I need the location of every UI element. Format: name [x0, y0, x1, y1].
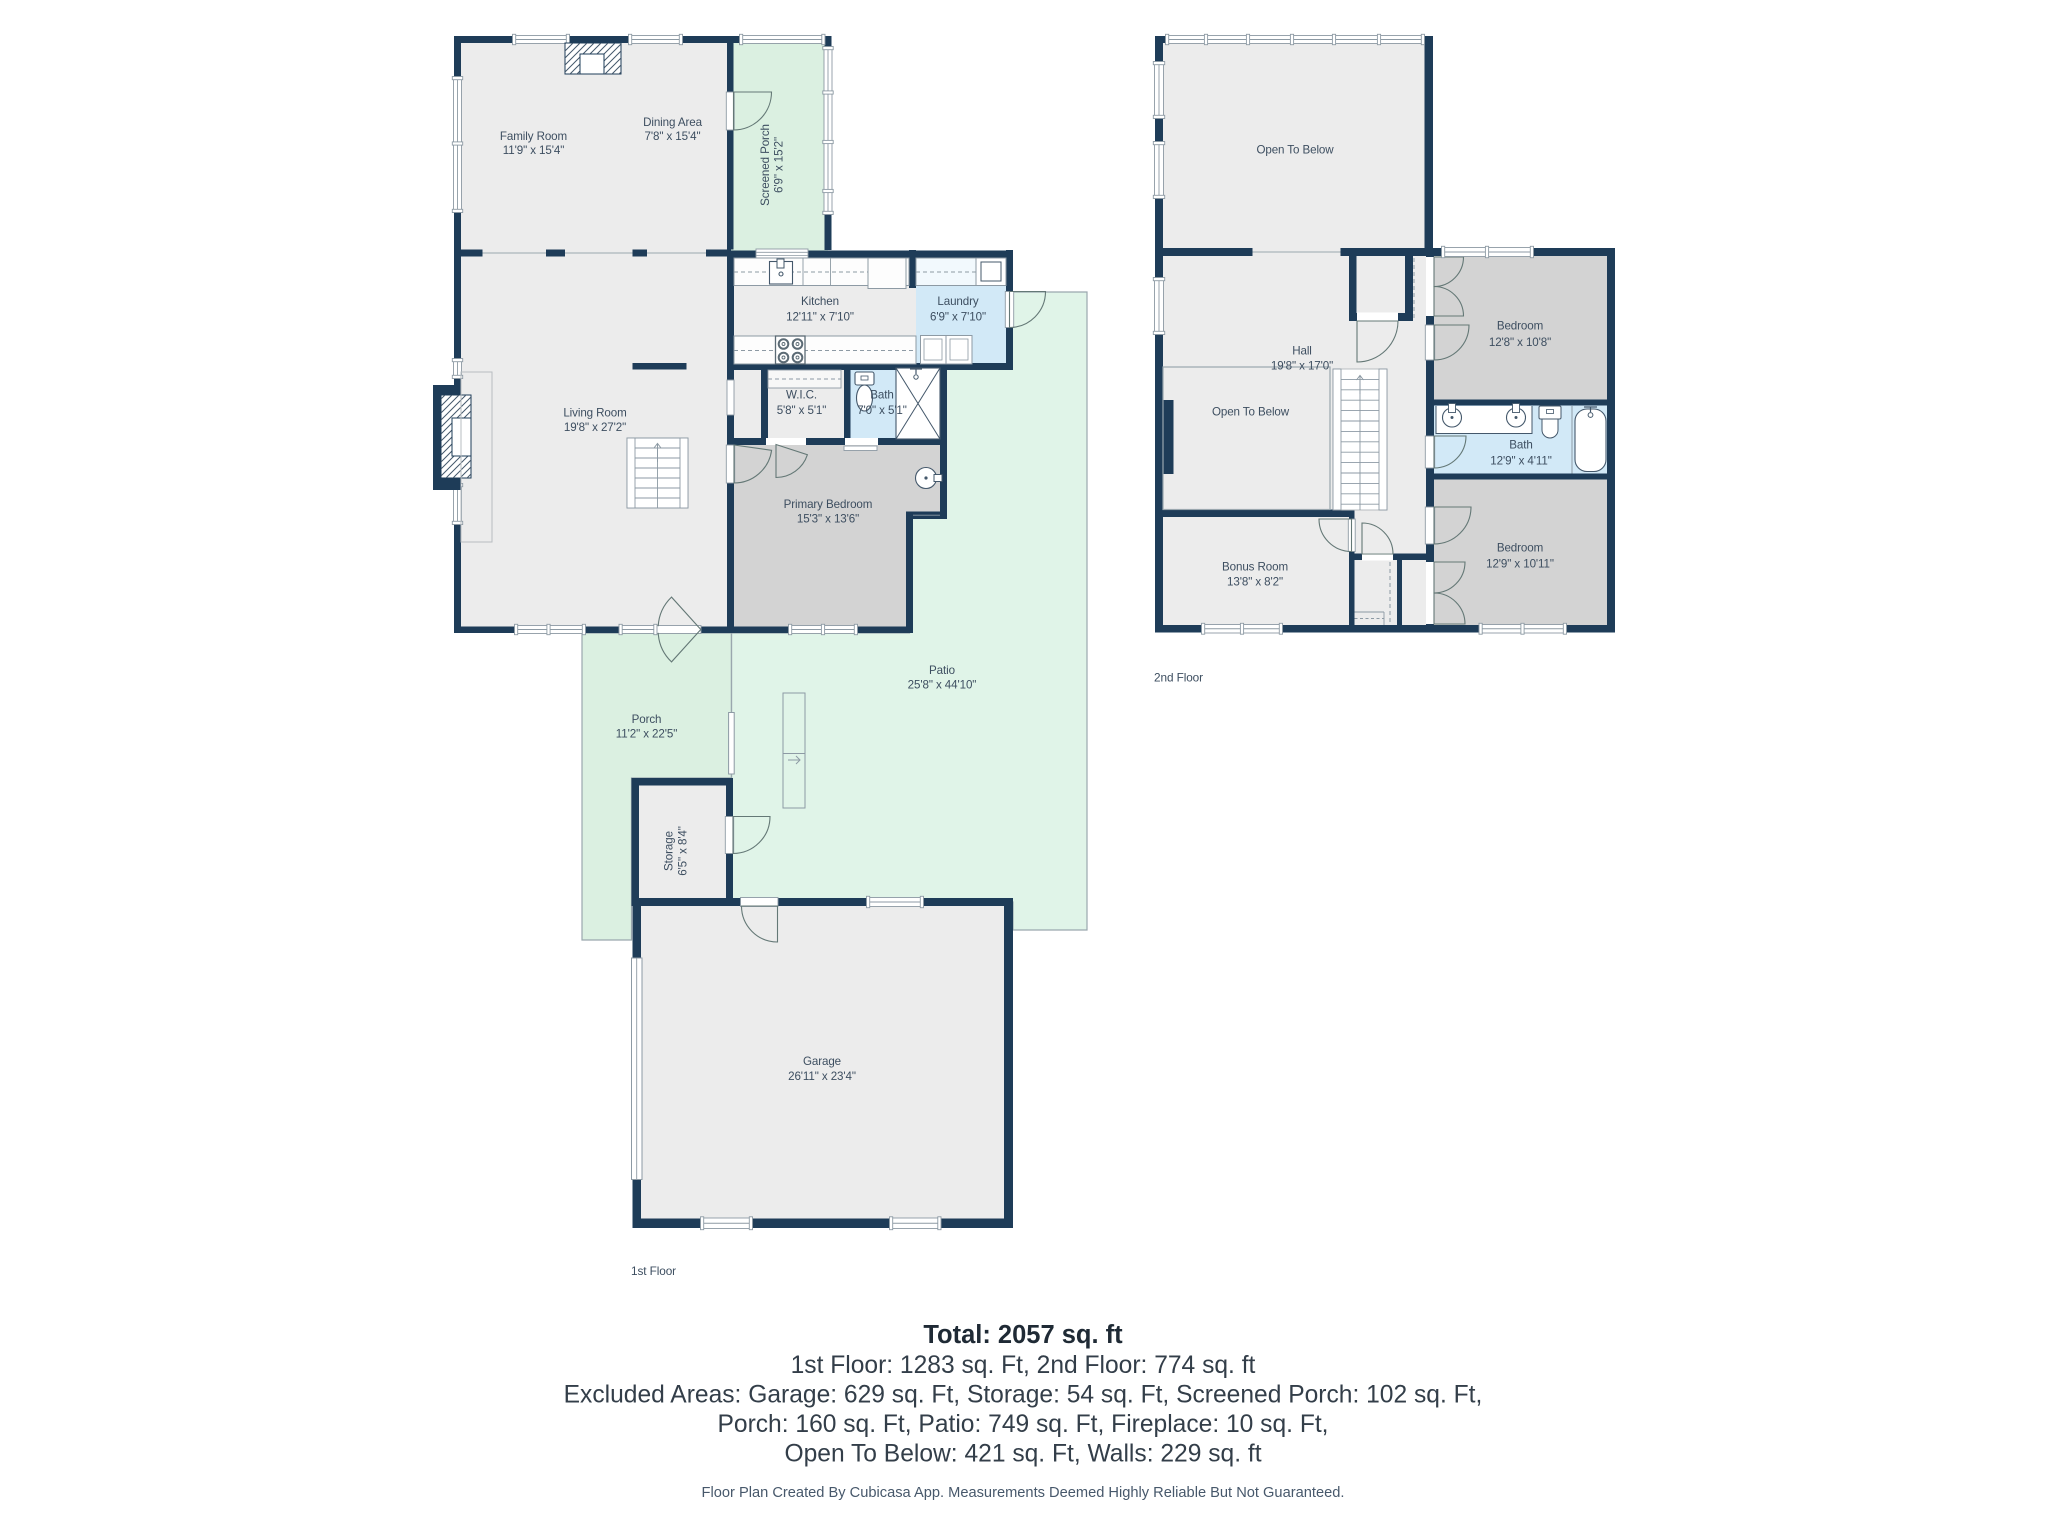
svg-text:Kitchen: Kitchen [801, 295, 839, 308]
svg-text:1st Floor: 1283 sq. Ft, 2nd Fl: 1st Floor: 1283 sq. Ft, 2nd Floor: 774 s… [791, 1352, 1256, 1379]
svg-text:12'8" x 10'8": 12'8" x 10'8" [1489, 336, 1551, 349]
svg-text:Family Room: Family Room [500, 130, 567, 143]
svg-text:Porch: Porch [632, 713, 662, 726]
svg-text:W.I.C.: W.I.C. [786, 389, 817, 402]
svg-text:Dining Area: Dining Area [643, 116, 702, 129]
svg-text:Bedroom: Bedroom [1497, 542, 1543, 555]
svg-text:Porch: 160 sq. Ft, Patio: 749: Porch: 160 sq. Ft, Patio: 749 sq. Ft, Fi… [717, 1411, 1328, 1438]
svg-text:2nd Floor: 2nd Floor [1154, 671, 1203, 685]
svg-text:12'9" x 10'11": 12'9" x 10'11" [1486, 558, 1554, 571]
svg-text:26'11" x 23'4": 26'11" x 23'4" [788, 1070, 856, 1083]
svg-text:11'2" x 22'5": 11'2" x 22'5" [616, 728, 677, 741]
svg-text:7'0" x 5'1": 7'0" x 5'1" [857, 404, 907, 417]
svg-text:1st Floor: 1st Floor [631, 1264, 676, 1278]
svg-text:7'8" x 15'4": 7'8" x 15'4" [645, 130, 701, 143]
svg-text:6'9" x 7'10": 6'9" x 7'10" [930, 311, 986, 324]
svg-text:Open To Below: Open To Below [1256, 144, 1334, 157]
svg-text:6'9" x 15'2": 6'9" x 15'2" [773, 137, 786, 193]
svg-text:12'11" x 7'10": 12'11" x 7'10" [786, 311, 854, 324]
svg-text:Bedroom: Bedroom [1497, 320, 1543, 333]
svg-text:Total: 2057 sq. ft: Total: 2057 sq. ft [923, 1321, 1123, 1349]
svg-text:12'9" x 4'11": 12'9" x 4'11" [1490, 455, 1551, 468]
svg-text:Excluded Areas: Garage: 629 sq: Excluded Areas: Garage: 629 sq. Ft, Stor… [564, 1382, 1483, 1409]
svg-text:Bath: Bath [870, 389, 893, 402]
svg-text:Laundry: Laundry [937, 295, 979, 308]
svg-text:Bonus Room: Bonus Room [1222, 561, 1288, 574]
svg-text:Storage: Storage [663, 831, 676, 871]
svg-text:Open To Below: 421 sq. Ft, Wal: Open To Below: 421 sq. Ft, Walls: 229 sq… [784, 1441, 1261, 1468]
svg-text:Bath: Bath [1509, 439, 1532, 452]
svg-text:Floor Plan Created By Cubicasa: Floor Plan Created By Cubicasa App. Meas… [702, 1485, 1345, 1501]
svg-text:Garage: Garage [803, 1055, 841, 1068]
svg-text:6'5" x 8'4": 6'5" x 8'4" [677, 826, 690, 876]
svg-text:Hall: Hall [1292, 345, 1312, 358]
svg-text:5'8" x 5'1": 5'8" x 5'1" [777, 404, 827, 417]
svg-text:Living Room: Living Room [563, 407, 626, 420]
svg-text:11'9" x 15'4": 11'9" x 15'4" [503, 144, 564, 157]
svg-text:Open To Below: Open To Below [1212, 406, 1290, 419]
svg-text:Primary Bedroom: Primary Bedroom [784, 498, 873, 511]
svg-text:25'8" x 44'10": 25'8" x 44'10" [908, 679, 977, 692]
svg-text:Patio: Patio [929, 664, 955, 677]
svg-text:19'8" x 27'2": 19'8" x 27'2" [564, 421, 626, 434]
svg-text:19'8" x 17'0": 19'8" x 17'0" [1271, 360, 1333, 373]
svg-text:Screened Porch: Screened Porch [759, 124, 772, 206]
svg-text:13'8" x 8'2": 13'8" x 8'2" [1227, 576, 1283, 589]
svg-text:15'3" x 13'6": 15'3" x 13'6" [797, 513, 859, 526]
